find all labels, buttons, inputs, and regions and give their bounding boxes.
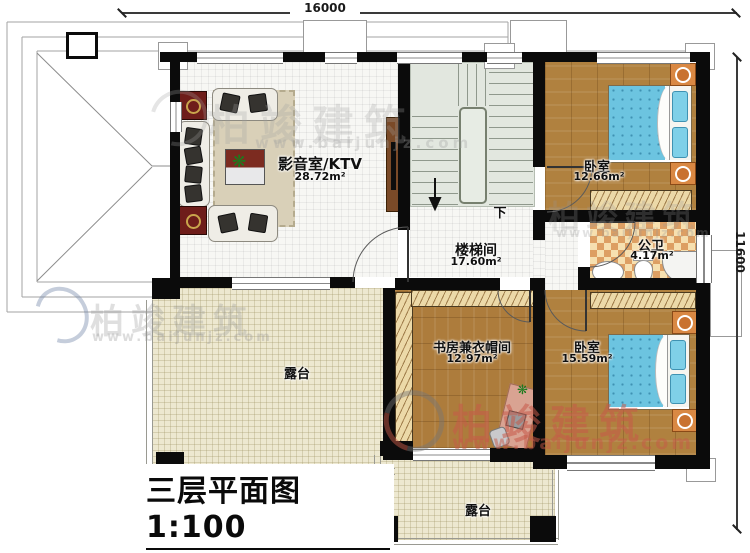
wardrobe-bedroom-bottom bbox=[590, 292, 696, 309]
sliding-door-terrace-left bbox=[232, 277, 330, 290]
dormer-window-left bbox=[303, 20, 367, 54]
watermark-url: www.baijunjz.com bbox=[556, 226, 711, 240]
corridor-passage-floor bbox=[533, 240, 545, 278]
window bbox=[567, 455, 655, 471]
nightstand-bottom-2 bbox=[672, 409, 698, 432]
window bbox=[197, 52, 283, 64]
terrace-bottom-floor bbox=[380, 455, 555, 540]
floor-plan-canvas: ❋ ❋ bbox=[0, 0, 750, 553]
column bbox=[530, 516, 556, 542]
nightstand-bottom-1 bbox=[672, 311, 698, 334]
stair-down-label: 下 bbox=[493, 202, 506, 221]
stair-treads-right bbox=[489, 64, 533, 205]
watermark-url: www.baijunjz.com bbox=[92, 330, 273, 345]
wall bbox=[530, 278, 545, 290]
window bbox=[696, 235, 712, 283]
sofa-bottom bbox=[208, 205, 278, 242]
dimension-right-value: 11600 bbox=[733, 218, 747, 286]
stair-treads-left bbox=[412, 106, 458, 205]
nightstand-top-1 bbox=[670, 63, 696, 86]
wardrobe-study-north bbox=[411, 290, 535, 307]
stair-upper-flight bbox=[458, 64, 489, 106]
chimney bbox=[66, 32, 98, 59]
room-area-bathroom: 4.17m² bbox=[630, 249, 673, 262]
wall bbox=[462, 52, 487, 62]
watermark-url: www.baijunjz.com bbox=[255, 134, 472, 152]
speaker-cabinet-bottom bbox=[178, 206, 207, 235]
wall bbox=[533, 455, 567, 469]
watermark-url: www.baijunjz.com bbox=[452, 432, 694, 454]
dormer-window-right bbox=[510, 20, 567, 54]
potted-plant: ❋ bbox=[232, 152, 246, 172]
window bbox=[597, 52, 690, 64]
nightstand-top-2 bbox=[670, 162, 696, 185]
wall bbox=[170, 132, 180, 288]
plan-scale: 1:100 bbox=[146, 510, 247, 545]
room-area-stairwell: 17.60m² bbox=[450, 255, 501, 268]
room-area-bedroom-bottom: 15.59m² bbox=[561, 352, 612, 365]
plan-title-line: 三层平面图 1:100 bbox=[146, 466, 390, 550]
wall bbox=[696, 283, 710, 469]
room-area-study: 12.97m² bbox=[446, 352, 497, 365]
window bbox=[397, 52, 462, 64]
bed-top bbox=[608, 85, 692, 163]
room-area-bedroom-top: 12.66m² bbox=[573, 170, 624, 183]
wall bbox=[330, 277, 355, 288]
window bbox=[487, 52, 522, 64]
wall bbox=[283, 52, 325, 62]
dimension-line-top bbox=[122, 12, 737, 14]
dimension-line-right bbox=[736, 57, 738, 530]
room-area-media: 28.72m² bbox=[294, 170, 345, 183]
room-label-terrace-left: 露台 bbox=[284, 363, 310, 382]
title-block: 三层平面图 1:100 本层建筑面积: 108.24m² 层高: 2.6m bbox=[142, 464, 394, 553]
wall bbox=[655, 455, 696, 469]
plan-title: 三层平面图 bbox=[146, 474, 301, 509]
wall bbox=[533, 52, 545, 167]
wall bbox=[395, 278, 500, 290]
wall bbox=[357, 52, 397, 62]
room-label-terrace-bottom: 露台 bbox=[465, 500, 491, 519]
window bbox=[325, 52, 357, 64]
stair-center-railing bbox=[459, 107, 487, 204]
dimension-top-value: 16000 bbox=[290, 1, 360, 15]
wall bbox=[586, 278, 696, 290]
watermark-logo bbox=[25, 277, 99, 353]
